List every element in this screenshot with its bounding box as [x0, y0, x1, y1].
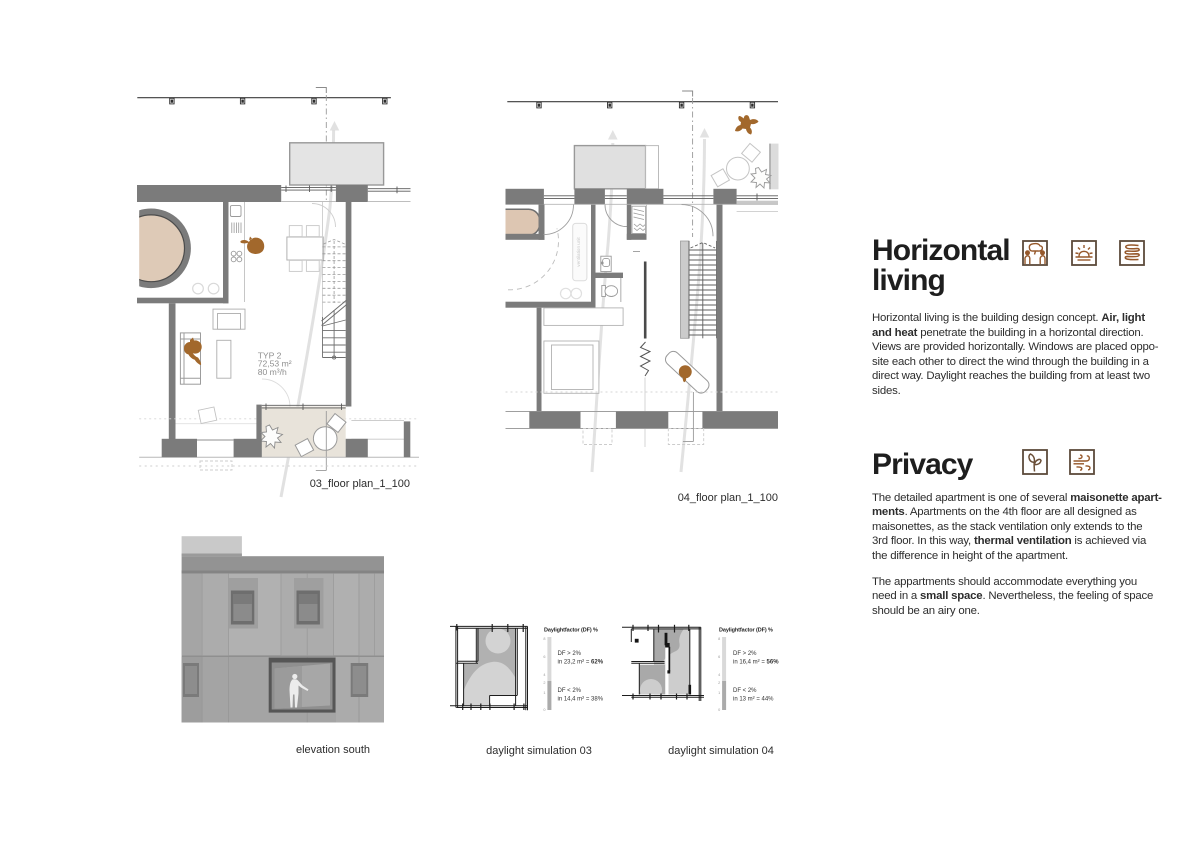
svg-text:8: 8	[718, 637, 720, 641]
svg-text:DF > 2%: DF > 2%	[733, 651, 757, 657]
svg-text:6: 6	[718, 655, 720, 659]
svg-text:8: 8	[543, 637, 545, 641]
svg-text:DF > 2%: DF > 2%	[558, 651, 582, 657]
svg-text:6: 6	[543, 655, 545, 659]
svg-text:1: 1	[543, 691, 545, 695]
svg-text:DF < 2%: DF < 2%	[733, 688, 757, 694]
svg-text:1: 1	[718, 691, 720, 695]
svg-text:in 14,4 m² = 38%: in 14,4 m² = 38%	[558, 697, 604, 703]
svg-text:in 23,2 m² = 62%: in 23,2 m² = 62%	[558, 660, 604, 666]
svg-text:0: 0	[543, 708, 545, 712]
svg-text:4: 4	[718, 673, 720, 677]
svg-text:ventilation unit: ventilation unit	[576, 237, 581, 267]
svg-text:in 16,4 m² = 56%: in 16,4 m² = 56%	[733, 660, 779, 666]
svg-text:2: 2	[543, 681, 545, 685]
svg-text:Daylightfactor (DF) %: Daylightfactor (DF) %	[544, 628, 598, 634]
svg-text:Daylightfactor (DF) %: Daylightfactor (DF) %	[719, 628, 773, 634]
svg-text:in 13 m² = 44%: in 13 m² = 44%	[733, 697, 774, 703]
svg-text:0: 0	[718, 708, 720, 712]
svg-text:2: 2	[718, 681, 720, 685]
svg-text:4: 4	[543, 673, 545, 677]
svg-text:DF < 2%: DF < 2%	[558, 688, 582, 694]
svg-text:80 m³/h: 80 m³/h	[258, 367, 287, 377]
